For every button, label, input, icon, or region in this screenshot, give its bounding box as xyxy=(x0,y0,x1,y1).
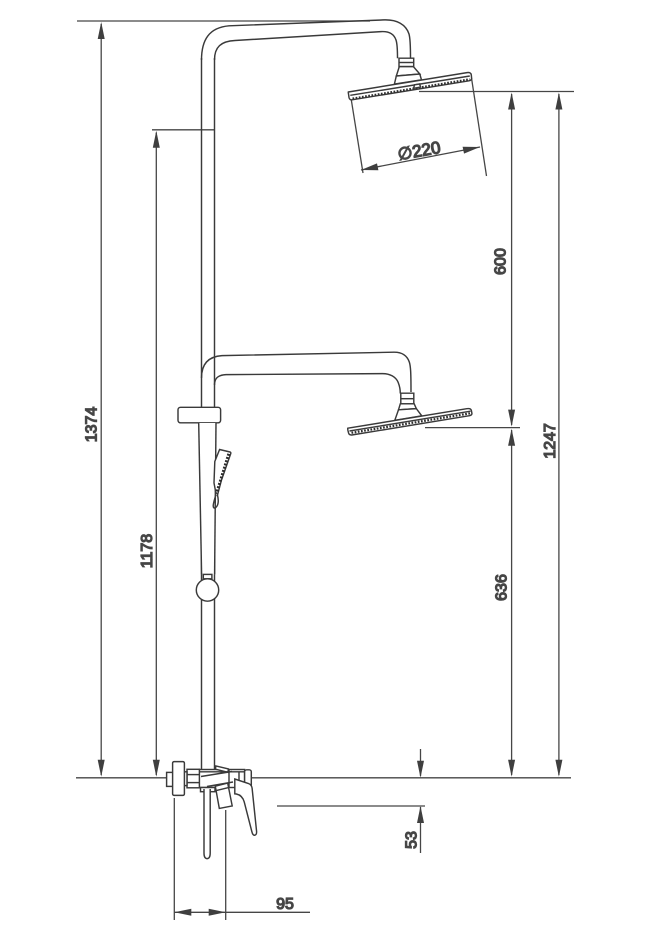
svg-text:1374: 1374 xyxy=(84,407,101,443)
svg-text:95: 95 xyxy=(276,896,294,913)
svg-text:636: 636 xyxy=(494,574,511,601)
svg-text:600: 600 xyxy=(493,248,510,275)
svg-text:∅220: ∅220 xyxy=(396,138,442,164)
svg-text:53: 53 xyxy=(404,831,421,849)
svg-text:1247: 1247 xyxy=(542,423,559,459)
svg-text:1178: 1178 xyxy=(139,534,156,569)
